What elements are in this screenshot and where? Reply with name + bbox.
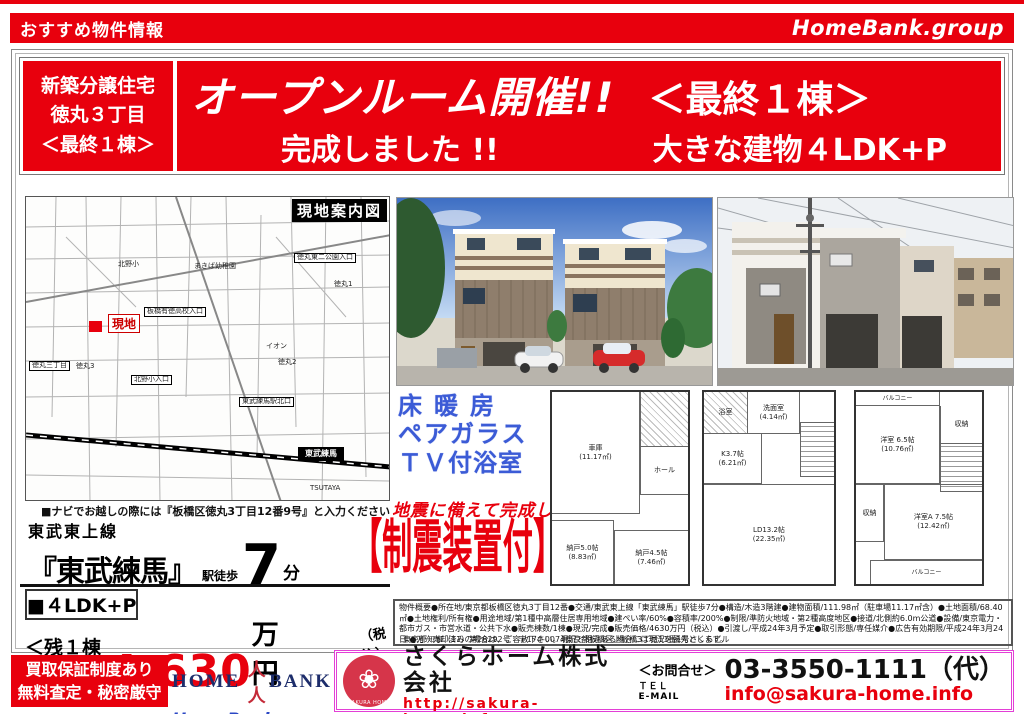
floorplan-1f: 車庫 (11.17㎡) ホール 納戸5.0帖 (8.83㎡) 納戸4.5帖 (7… [550,390,690,586]
phone-number: 03-3550-1111（代） [725,657,1006,684]
sakura-logo: ❀ SAKURA HOME [343,655,395,707]
map-label-tokumaru2: 徳丸2 [278,359,296,367]
map-label-kitano-entrance: 北野小入口 [131,375,172,385]
map-label-aeon: イオン [266,343,287,351]
room-western-75: 洋室A 7.5帖 (12.42㎡) [884,484,982,560]
walk-label: 駅徒歩 [202,567,238,584]
floorplan-3f: バルコニー 洋室 6.5帖 (10.76㎡) 収納 洋室A 7.5帖 (12.4… [854,390,984,586]
map-label-station-north: 東武練馬駅北口 [239,397,294,407]
feature-pair-glass: ペアガラス [398,420,548,448]
homebank-logo-left: HOME [172,671,240,693]
map-label-kindergarten: まきば幼稚園 [194,263,236,271]
divider-rule [20,584,390,587]
email-label: E-MAIL [638,692,716,702]
top-bar-brand: HomeBank.group [792,16,1004,40]
homebank-logo-right: BANK [269,671,332,693]
email-address: info@sakura-home.info [725,685,1006,705]
closet-top: 収納 [940,406,982,444]
room-garage: 車庫 (11.17㎡) [552,392,640,514]
badge-line-3: ＜最終１棟＞ [41,131,155,160]
room-washroom: 洗面室 (4.14㎡) [748,392,800,434]
headline-openroom: オープンルーム開催!! [191,64,615,125]
people-icon: 人人 [242,656,267,708]
balcony-bottom: バルコニー [870,560,982,584]
room-storage-5: 納戸5.0帖 (8.83㎡) [552,520,614,584]
seismic-device-banner: 【制震装置付】 [352,516,563,580]
feature-floor-heating: 床暖房 [398,392,548,420]
header: 新築分譲住宅 徳丸３丁目 ＜最終１棟＞ オープンルーム開催!! ＜最終１棟＞ 完… [19,57,1005,175]
room-storage-45: 納戸4.5帖 (7.46㎡) [614,530,688,584]
map-label-highschool-entrance: 板橋有徳高校入口 [144,307,206,317]
contact-label: ＜お問合せ＞ [638,660,716,679]
top-bar: おすすめ物件情報 HomeBank.group [10,13,1014,43]
headline-completed: 完成しました !! [281,125,499,169]
exterior-photo [717,197,1014,386]
plan-type: ■４LDK+P [25,589,138,620]
balcony-top: バルコニー [856,392,940,406]
room-ld: LD13.2帖 (22.35㎡) [704,484,834,584]
headline-banner: オープンルーム開催!! ＜最終１棟＞ 完成しました !! 大きな建物４LDK+P [177,61,1001,171]
site-marker [89,321,102,332]
guarantee-badge: 買取保証制度あり 無料査定・秘密厳守 [11,655,168,707]
room-bath: 浴室 [704,392,748,434]
site-marker-label: 現地 [108,314,140,333]
guarantee-line-2: 無料査定・秘密厳守 [17,681,161,704]
map-label-tokumaru1: 徳丸1 [334,281,352,289]
map-label-school: 北野小 [118,261,139,269]
map-label-tokumaru3: 徳丸3 [76,363,94,371]
headline-last-unit: ＜最終１棟＞ [649,69,871,123]
walk-minutes: 7 [242,542,281,590]
map-label-station: 東武練馬 [302,449,340,460]
map-title: 現地案内図 [292,199,387,222]
sakura-logo-caption: SAKURA HOME [348,700,390,706]
room-kitchen: K3.7帖 (6.21㎡) [704,434,762,484]
access-info: 東武東上線 『東武練馬』 駅徒歩 7 分 [28,518,388,590]
room-western-65: 洋室 6.5帖 (10.76㎡) [856,406,940,484]
guarantee-line-1: 買取保証制度あり [25,658,153,681]
homebank-logo: HOME 人人 BANK HomeBank.group [172,656,332,708]
blossom-icon: ❀ [358,665,380,695]
floorplan-2f: 浴室 洗面室 (4.14㎡) K3.7帖 (6.21㎡) LD13.2帖 (22… [702,390,836,586]
company-name: さくらホーム株式会社 [403,645,630,696]
room-hall: ホール [640,447,688,495]
walk-minutes-unit: 分 [283,559,300,584]
feature-tv-bath: ＴＶ付浴室 [398,449,548,477]
property-badge: 新築分譲住宅 徳丸３丁目 ＜最終１棟＞ [23,61,173,171]
closet-bottom: 収納 [856,484,884,542]
top-bar-title: おすすめ物件情報 [20,16,164,41]
top-accent-line [0,0,1024,4]
location-map: 現地案内図 現地 北野小 まきば幼稚園 徳丸東二公園入口 板橋有徳高校入口 徳丸… [25,196,390,501]
tel-label: ＴＥＬ [638,679,716,692]
company-contact-box: ❀ SAKURA HOME 東京都知事（11）第26292号 〒174-0074… [334,650,1014,712]
rail-line: 東武東上線 [28,518,388,542]
badge-line-2: 徳丸３丁目 [50,101,145,130]
headline-building: 大きな建物４LDK+P [653,125,947,169]
flyer-page: おすすめ物件情報 HomeBank.group 新築分譲住宅 徳丸３丁目 ＜最終… [0,0,1024,714]
cg-render-photo [396,197,713,386]
feature-list: 床暖房 ペアガラス ＴＶ付浴室 [398,392,548,477]
navigation-note: ■ナビでお越しの際には『板橋区徳丸3丁目12番9号』と入力ください [25,503,390,519]
stairs-2f [800,422,834,477]
map-label-tokumaru3chome: 徳丸三丁目 [29,361,70,371]
map-label-park-entrance: 徳丸東二公園入口 [294,253,356,263]
company-url: http://sakura-home.info [403,696,630,714]
stairs-1f [640,392,688,447]
homebank-group-label: HomeBank.group [172,710,332,714]
map-label-tsutaya: TSUTAYA [310,485,340,493]
badge-line-1: 新築分譲住宅 [41,72,155,101]
